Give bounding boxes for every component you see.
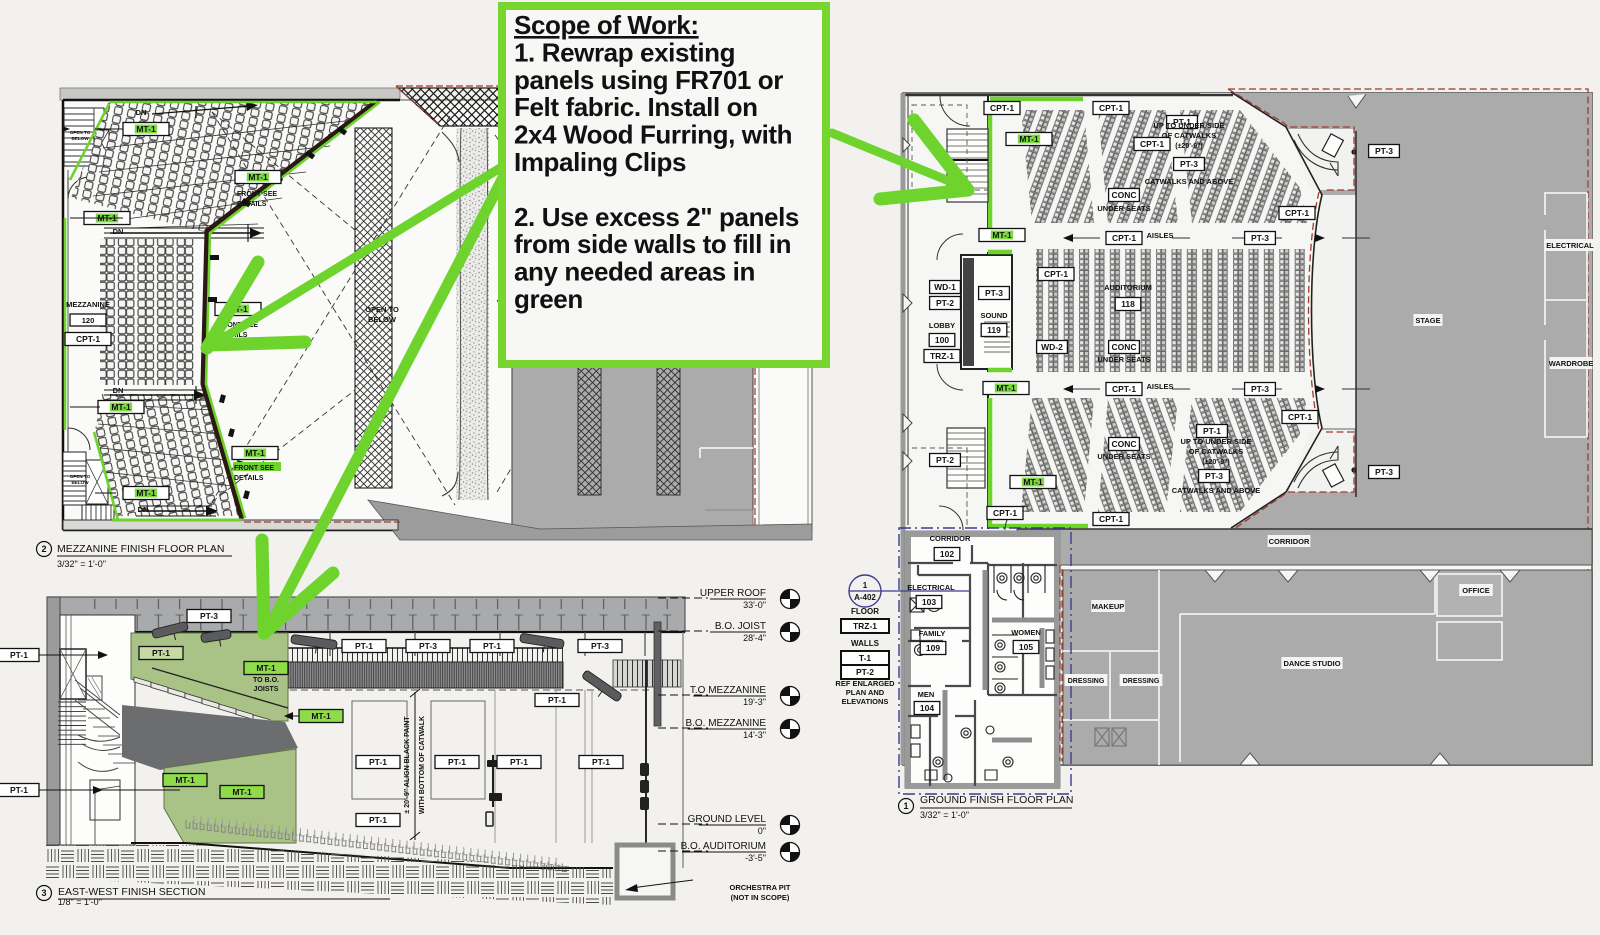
svg-text:MT-1: MT-1 [992,230,1012,240]
svg-text:CPT-1: CPT-1 [76,334,100,344]
svg-text:PT-3: PT-3 [985,288,1003,298]
svg-text:MT-1: MT-1 [232,787,252,797]
svg-text:GROUND FINISH FLOOR PLAN: GROUND FINISH FLOOR PLAN [920,794,1073,806]
svg-text:105: 105 [1019,642,1033,652]
svg-text:(NOT IN SCOPE): (NOT IN SCOPE) [731,893,790,902]
svg-text:OPEN TO: OPEN TO [70,474,91,479]
svg-text:(±20'-9"): (±20'-9") [1202,459,1230,466]
svg-text:CATWALKS AND ABOVE: CATWALKS AND ABOVE [1145,177,1233,186]
svg-text:(±20'-9"): (±20'-9") [1175,143,1203,150]
svg-text:PT-3: PT-3 [1180,159,1198,169]
svg-text:UPPER ROOF: UPPER ROOF [700,588,766,599]
svg-text:PT-1: PT-1 [355,641,373,651]
svg-text:MEN: MEN [918,690,935,699]
svg-text:OF CATWALKS: OF CATWALKS [1189,447,1243,456]
svg-text:PT-1: PT-1 [10,650,28,660]
svg-text:MT-1: MT-1 [1023,477,1043,487]
svg-text:PT-2: PT-2 [936,455,954,465]
svg-text:CPT-1: CPT-1 [1112,384,1136,394]
svg-text:3/32" = 1'-0": 3/32" = 1'-0" [920,810,969,820]
svg-text:103: 103 [922,597,936,607]
svg-text:MT-1: MT-1 [248,172,268,182]
svg-text:DN: DN [138,505,149,514]
svg-text:UP TO UNDER SIDE: UP TO UNDER SIDE [1181,437,1252,446]
svg-text:LOBBY: LOBBY [929,321,955,330]
svg-text:PT-3: PT-3 [1205,471,1223,481]
svg-text:1: 1 [903,801,908,811]
svg-text:1. Rewrap existing: 1. Rewrap existing [514,37,735,67]
svg-text:MT-1: MT-1 [311,711,331,721]
svg-text:104: 104 [920,703,934,713]
svg-text:OPEN TO: OPEN TO [365,305,399,314]
svg-text:JOISTS: JOISTS [254,686,279,693]
svg-text:CPT-1: CPT-1 [1140,139,1164,149]
svg-text:PT-1: PT-1 [548,695,566,705]
svg-text:UNDER SEATS: UNDER SEATS [1097,452,1150,461]
svg-text:MEZZANINE FINISH FLOOR PLAN: MEZZANINE FINISH FLOOR PLAN [57,543,224,555]
svg-text:T-1: T-1 [859,653,872,663]
svg-text:B.O. JOIST: B.O. JOIST [715,621,766,632]
svg-text:120: 120 [82,316,95,325]
svg-text:PT-2: PT-2 [856,667,874,677]
svg-text:PT-1: PT-1 [369,757,387,767]
svg-text:BELOW: BELOW [368,315,397,324]
svg-text:PT-3: PT-3 [200,611,218,621]
svg-text:CONC: CONC [1111,190,1136,200]
svg-text:WOMEN: WOMEN [1011,628,1041,637]
svg-text:AUDITORIUM: AUDITORIUM [1104,283,1152,292]
svg-text:TO B.O.: TO B.O. [253,677,279,684]
svg-text:ELEVATIONS: ELEVATIONS [842,697,889,706]
svg-text:PT-1: PT-1 [10,785,28,795]
svg-text:CPT-1: CPT-1 [990,103,1014,113]
svg-text:OF CATWALKS: OF CATWALKS [1162,131,1216,140]
svg-text:WD-2: WD-2 [1041,342,1063,352]
svg-text:CPT-1: CPT-1 [1099,103,1123,113]
svg-text:FLOOR: FLOOR [851,607,879,616]
svg-text:WITH BOTTOM OF CATWALK: WITH BOTTOM OF CATWALK [419,716,426,814]
svg-text:2x4 Wood Furring, with: 2x4 Wood Furring, with [514,120,792,150]
svg-text:A-402: A-402 [854,593,876,602]
svg-text:AISLES: AISLES [1146,382,1173,391]
svg-text:19'-3": 19'-3" [743,697,766,707]
svg-text:1/8" = 1'-0": 1/8" = 1'-0" [58,897,102,907]
svg-text:CPT-1: CPT-1 [1112,233,1136,243]
svg-text:MT-1: MT-1 [996,383,1016,393]
svg-text:AISLES: AISLES [1146,231,1173,240]
svg-text:CONC: CONC [1111,439,1136,449]
svg-text:PT-3: PT-3 [591,641,609,651]
svg-text:Impaling Clips: Impaling Clips [514,147,686,177]
svg-text:PT-2: PT-2 [936,298,954,308]
svg-text:CORRIDOR: CORRIDOR [930,534,971,543]
svg-text:ORCHESTRA PIT: ORCHESTRA PIT [730,883,791,892]
svg-text:WALLS: WALLS [851,639,880,648]
svg-text:1: 1 [863,581,868,590]
svg-text:UNDER SEATS: UNDER SEATS [1097,355,1150,364]
svg-text:3/32" = 1'-0": 3/32" = 1'-0" [57,559,106,569]
svg-text:DRESSING: DRESSING [1123,678,1160,685]
svg-text:2: 2 [41,544,46,554]
svg-text:B.O. AUDITORIUM: B.O. AUDITORIUM [681,841,766,852]
svg-text:GROUND LEVEL: GROUND LEVEL [688,814,767,825]
svg-text:SOUND: SOUND [980,311,1008,320]
svg-text:118: 118 [1121,299,1135,309]
svg-text:OFFICE: OFFICE [1462,586,1490,595]
svg-text:ELECTRICAL: ELECTRICAL [1546,241,1594,250]
svg-text:CONC: CONC [1111,342,1136,352]
svg-text:PT-1: PT-1 [1203,426,1221,436]
svg-text:PT-1: PT-1 [369,815,387,825]
svg-text:DN: DN [113,227,124,236]
svg-text:FRONT SEE: FRONT SEE [237,191,277,198]
svg-text:T.O MEZZANINE: T.O MEZZANINE [690,685,766,696]
svg-text:PT-1: PT-1 [510,757,528,767]
svg-text:PT-3: PT-3 [419,641,437,651]
svg-text:CPT-1: CPT-1 [993,508,1017,518]
svg-text:WARDROBE: WARDROBE [1549,359,1594,368]
svg-text:B.O. MEZZANINE: B.O. MEZZANINE [685,718,766,729]
svg-text:BELOW: BELOW [71,480,89,485]
svg-text:MT-1: MT-1 [111,402,131,412]
svg-text:REF ENLARGED: REF ENLARGED [835,679,895,688]
svg-text:DANCE STUDIO: DANCE STUDIO [1283,659,1340,668]
svg-text:panels using FR701 or: panels using FR701 or [514,65,783,95]
svg-text:CATWALKS AND ABOVE: CATWALKS AND ABOVE [1172,486,1260,495]
svg-text:FAMILY: FAMILY [919,629,946,638]
svg-text:102: 102 [940,549,954,559]
svg-text:PT-3: PT-3 [1375,467,1393,477]
svg-text:PT-3: PT-3 [1375,146,1393,156]
svg-text:MT-1: MT-1 [136,124,156,134]
svg-text:CPT-1: CPT-1 [1099,514,1123,524]
svg-text:DN: DN [136,108,147,117]
svg-text:STAGE: STAGE [1415,316,1440,325]
svg-text:TRZ-1: TRZ-1 [853,621,877,631]
svg-text:MAKEUP: MAKEUP [1092,602,1125,611]
svg-text:PT-1: PT-1 [152,648,170,658]
svg-text:PT-3: PT-3 [1251,233,1269,243]
svg-text:UNDER SEATS: UNDER SEATS [1097,204,1150,213]
svg-text:MT-1: MT-1 [136,488,156,498]
svg-text:-3'-5": -3'-5" [745,853,766,863]
svg-text:CPT-1: CPT-1 [1044,269,1068,279]
svg-text:100: 100 [935,335,949,345]
svg-text:WD-1: WD-1 [934,282,956,292]
svg-text:MEZZANINE: MEZZANINE [66,300,110,309]
svg-text:CPT-1: CPT-1 [1285,208,1309,218]
svg-text:DETAILS: DETAILS [234,475,264,482]
svg-text:± 20'-9" ALIGN BLACK PAINT: ± 20'-9" ALIGN BLACK PAINT [404,716,411,814]
svg-text:MT-1: MT-1 [175,775,195,785]
svg-text:PT-1: PT-1 [448,757,466,767]
svg-text:OPEN TO: OPEN TO [70,130,91,135]
svg-text:3: 3 [41,888,46,898]
svg-text:109: 109 [926,643,940,653]
svg-text:FRONT SEE: FRONT SEE [234,465,274,472]
svg-text:PT-1: PT-1 [592,757,610,767]
svg-text:Scope of Work:: Scope of Work: [514,10,699,40]
svg-text:MT-1: MT-1 [245,448,265,458]
svg-text:119: 119 [987,325,1001,335]
svg-text:2. Use excess 2" panels: 2. Use excess 2" panels [514,202,799,232]
svg-text:Felt fabric. Install on: Felt fabric. Install on [514,92,758,122]
svg-text:0": 0" [758,826,766,836]
svg-text:MT-1: MT-1 [1019,134,1039,144]
svg-text:CPT-1: CPT-1 [1288,412,1312,422]
svg-text:DETAILS: DETAILS [237,201,267,208]
svg-text:33'-0": 33'-0" [743,600,766,610]
svg-text:green: green [514,284,583,314]
svg-text:DN: DN [113,386,124,395]
svg-text:any needed areas in: any needed areas in [514,257,755,287]
svg-text:UP TO UNDER SIDE: UP TO UNDER SIDE [1154,121,1225,130]
svg-text:PT-3: PT-3 [1251,384,1269,394]
svg-text:PT-1: PT-1 [483,641,501,651]
svg-text:14'-3": 14'-3" [743,730,766,740]
svg-text:PLAN AND: PLAN AND [846,688,885,697]
svg-text:TRZ-1: TRZ-1 [930,351,954,361]
svg-text:MT-1: MT-1 [256,663,276,673]
svg-text:DRESSING: DRESSING [1068,678,1105,685]
svg-text:BELOW: BELOW [71,136,89,141]
svg-text:28'-4": 28'-4" [743,633,766,643]
svg-text:from side walls to fill in: from side walls to fill in [514,229,791,259]
svg-text:CORRIDOR: CORRIDOR [1269,537,1310,546]
